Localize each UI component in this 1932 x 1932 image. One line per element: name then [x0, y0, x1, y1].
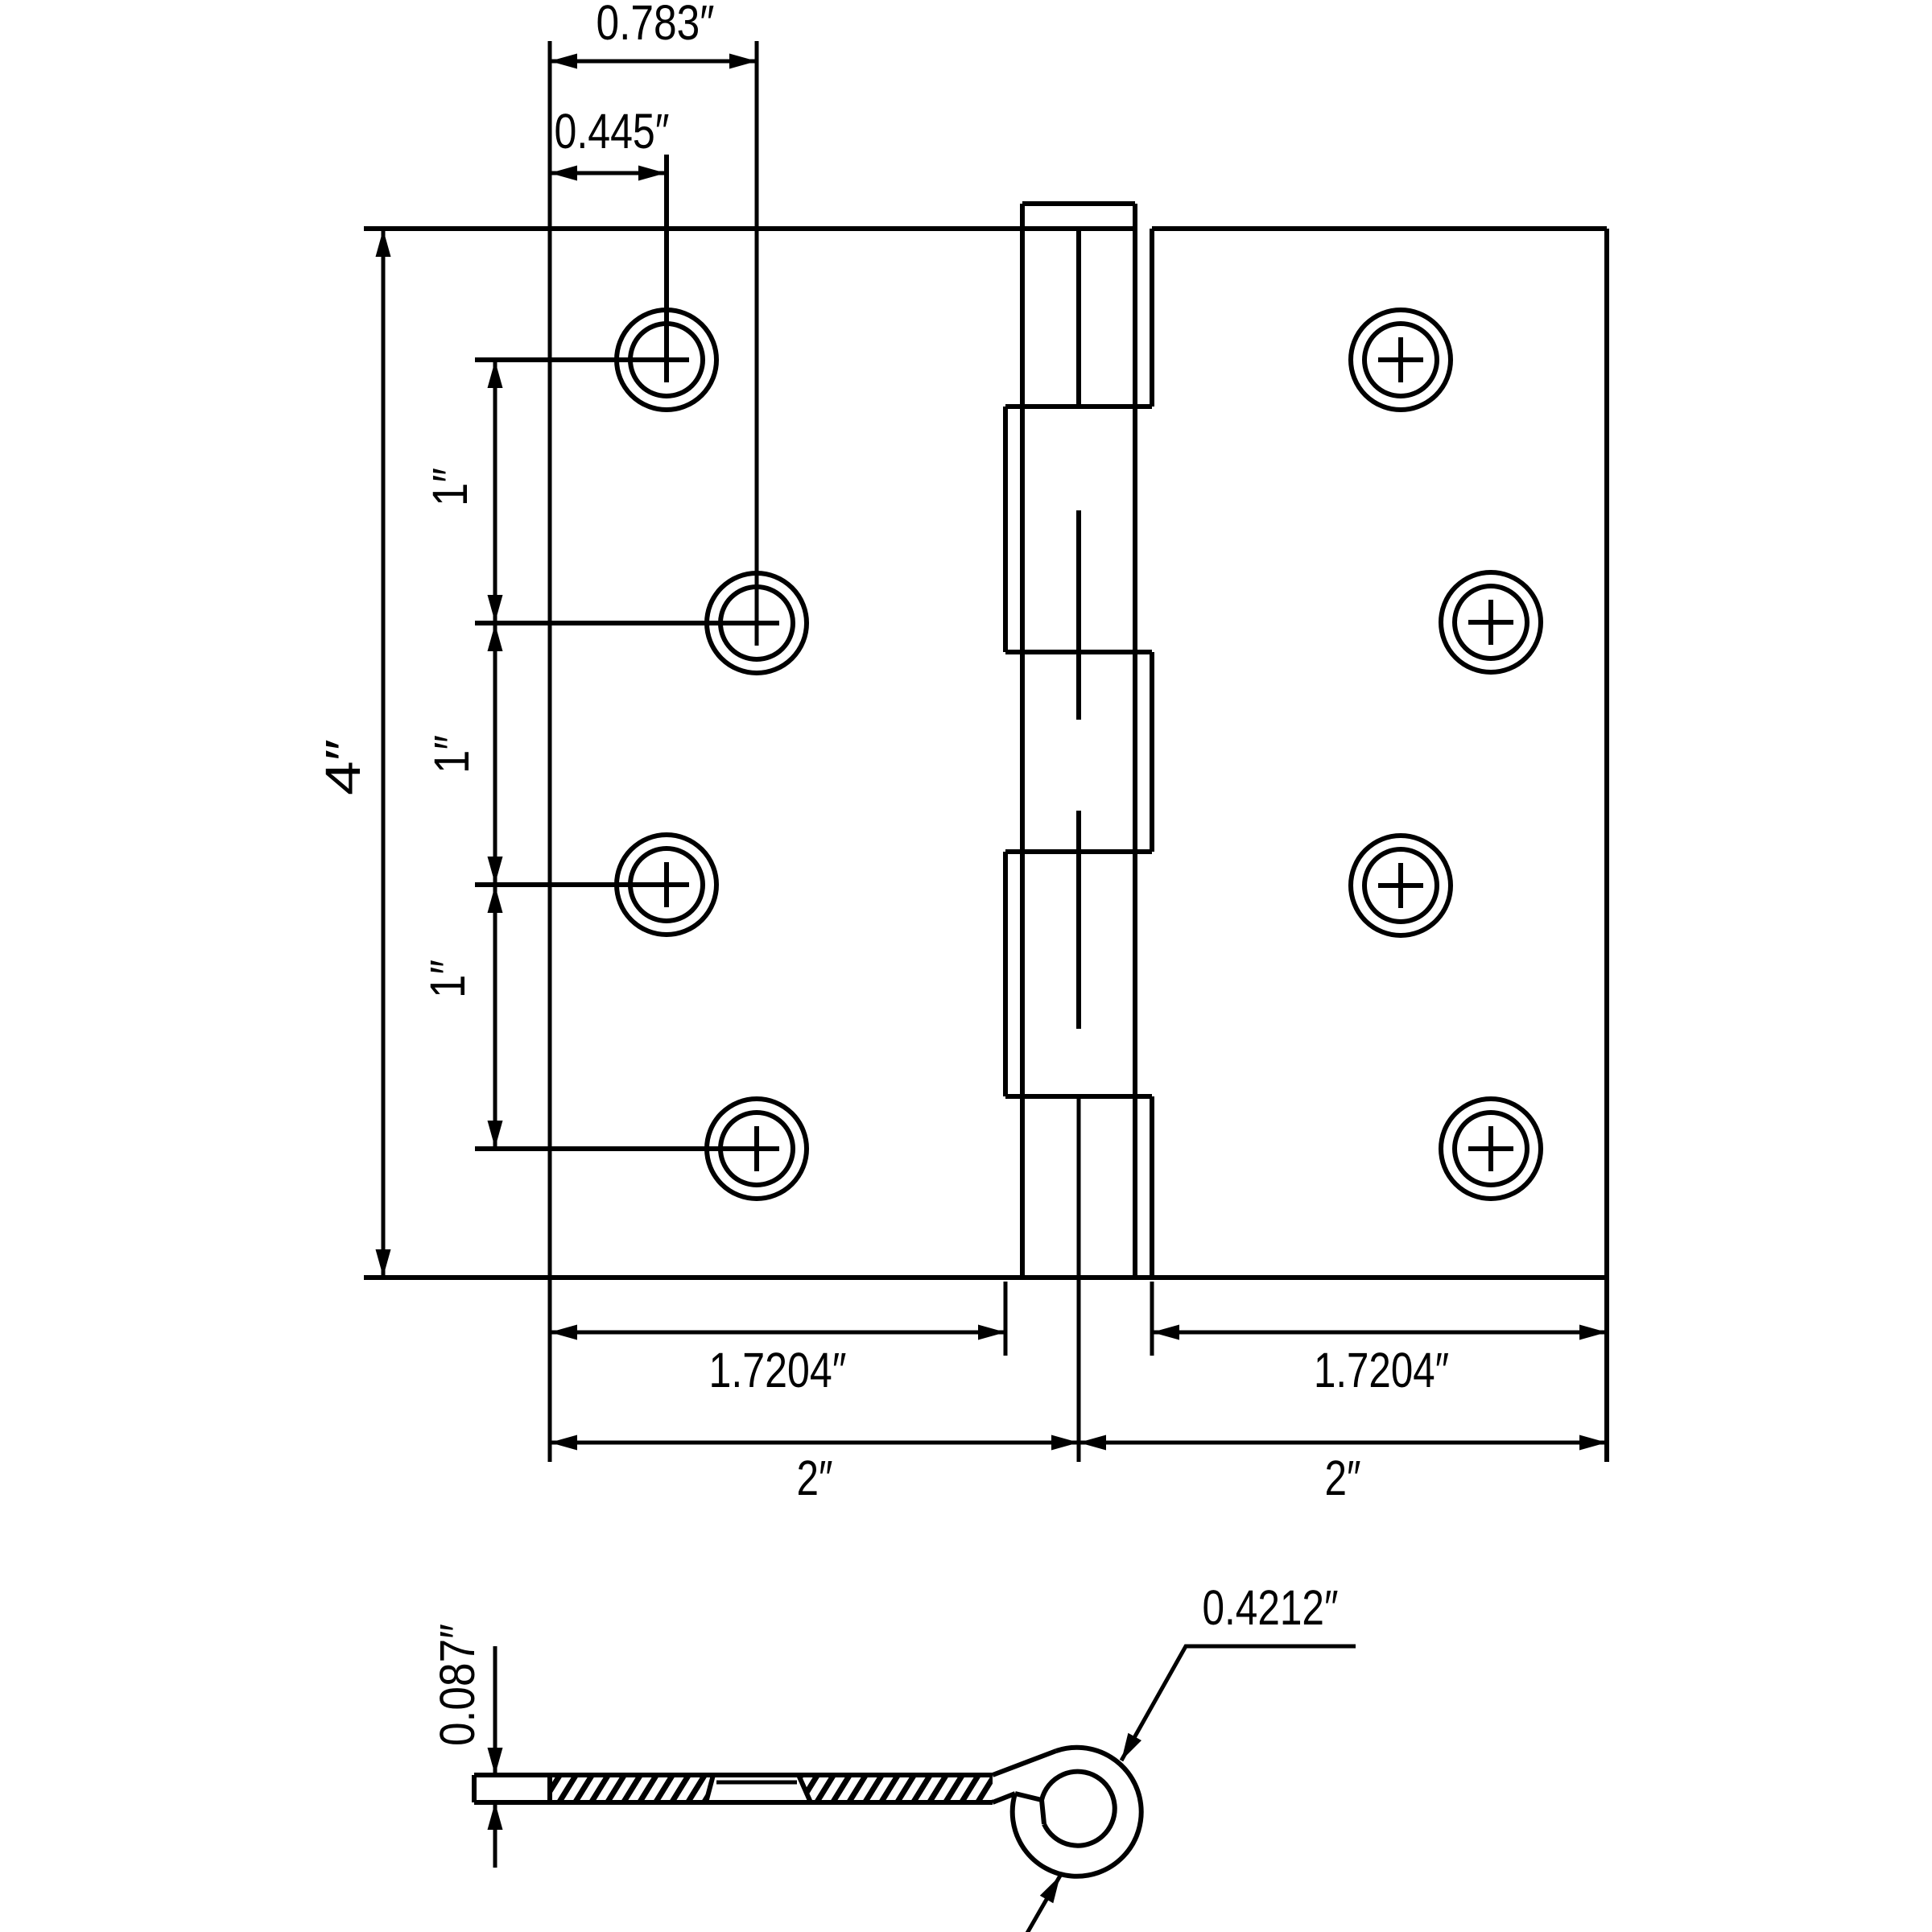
svg-text:1″: 1″ [424, 735, 479, 774]
svg-text:1.7204″: 1.7204″ [709, 1343, 847, 1397]
svg-text:0.087″: 0.087″ [430, 1624, 485, 1746]
svg-text:0.445″: 0.445″ [555, 104, 670, 159]
svg-text:1.7204″: 1.7204″ [1314, 1343, 1449, 1397]
svg-text:1″: 1″ [423, 468, 477, 506]
svg-text:1″: 1″ [420, 960, 475, 998]
svg-text:2″: 2″ [797, 1451, 833, 1505]
svg-text:4″: 4″ [316, 739, 370, 795]
svg-text:0.783″: 0.783″ [597, 0, 715, 50]
svg-text:2″: 2″ [1325, 1451, 1361, 1505]
svg-text:0.4212″: 0.4212″ [1203, 1580, 1339, 1635]
